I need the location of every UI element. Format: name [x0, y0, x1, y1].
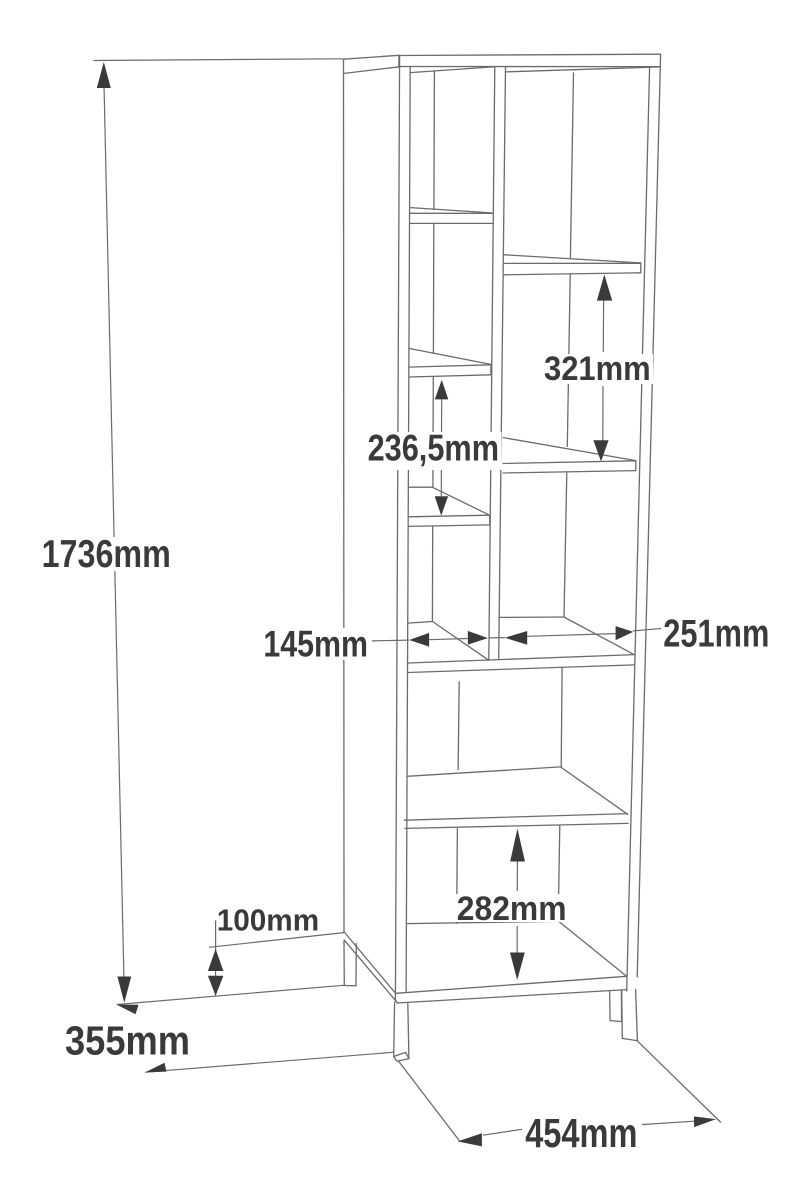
svg-text:355mm: 355mm	[65, 1018, 190, 1064]
svg-text:145mm: 145mm	[263, 622, 368, 664]
svg-text:454mm: 454mm	[525, 1110, 637, 1156]
svg-text:100mm: 100mm	[217, 903, 320, 938]
svg-text:321mm: 321mm	[544, 350, 651, 388]
svg-text:251mm: 251mm	[663, 613, 769, 656]
svg-text:282mm: 282mm	[457, 890, 567, 928]
svg-text:1736mm: 1736mm	[42, 533, 171, 576]
svg-text:236,5mm: 236,5mm	[368, 427, 499, 469]
